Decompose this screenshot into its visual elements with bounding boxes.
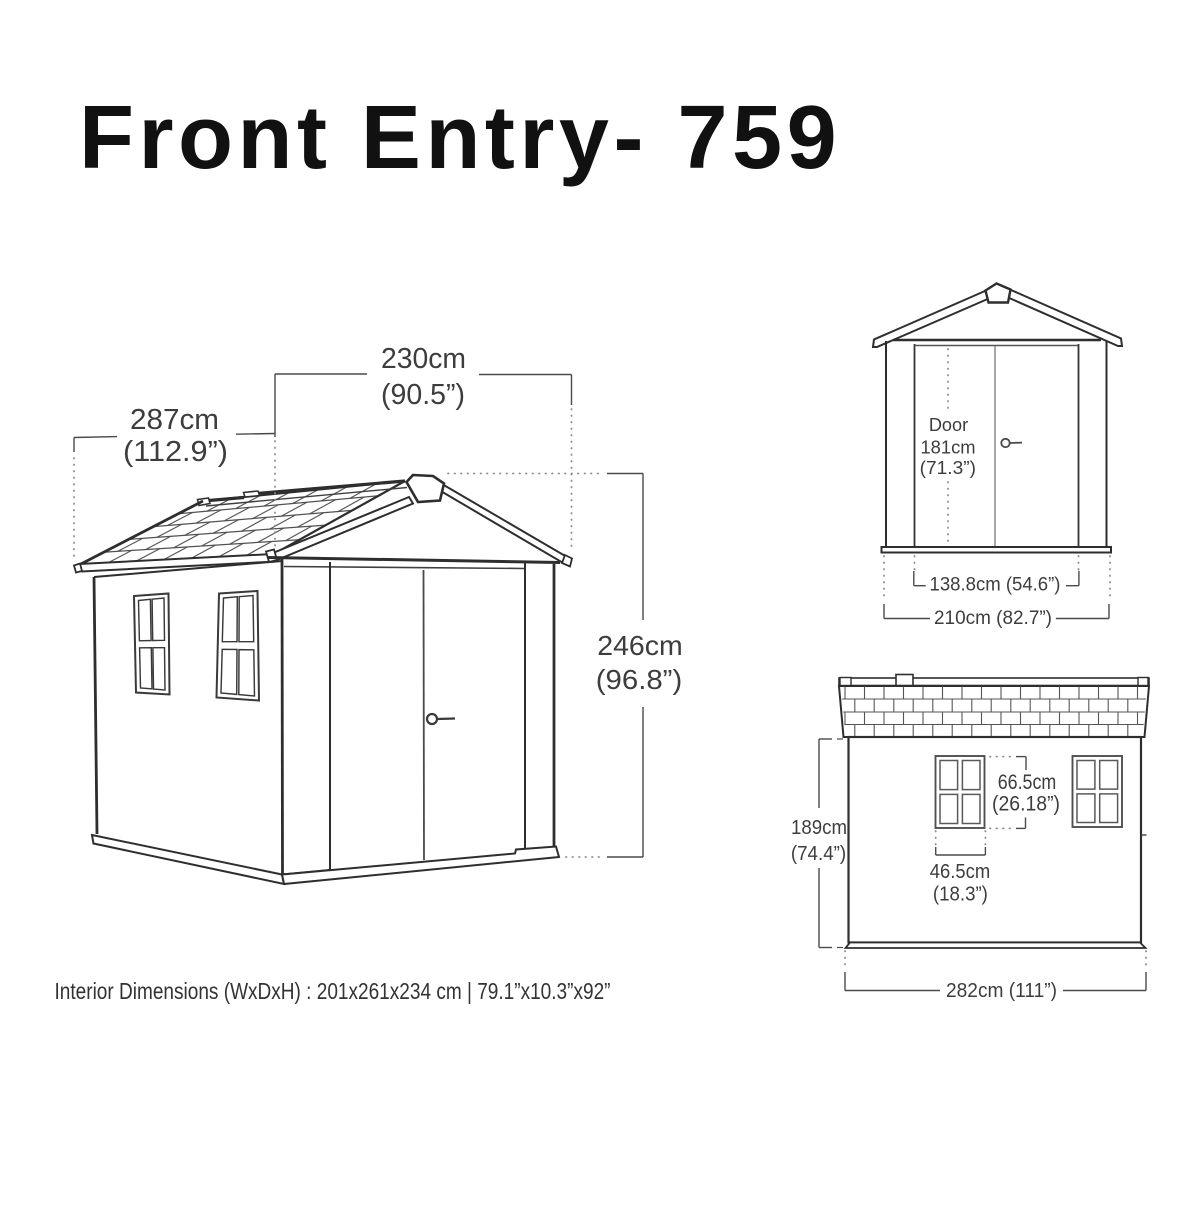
- svg-text:(112.9”): (112.9”): [123, 436, 228, 468]
- svg-text:287cm: 287cm: [130, 404, 219, 436]
- svg-text:246cm: 246cm: [597, 630, 683, 661]
- svg-text:(74.4”): (74.4”): [791, 842, 846, 865]
- svg-text:(90.5”): (90.5”): [381, 379, 465, 411]
- svg-text:66.5cm: 66.5cm: [998, 771, 1057, 794]
- svg-text:(26.18”): (26.18”): [992, 792, 1060, 815]
- svg-text:210cm (82.7”): 210cm (82.7”): [934, 607, 1052, 629]
- svg-text:Interior Dimensions (WxDxH) :: Interior Dimensions (WxDxH) : 201x261x23…: [55, 978, 611, 1004]
- svg-text:(71.3”): (71.3”): [920, 457, 976, 478]
- svg-text:282cm (111”): 282cm (111”): [946, 980, 1057, 1002]
- svg-text:189cm: 189cm: [791, 816, 847, 839]
- svg-text:46.5cm: 46.5cm: [930, 861, 990, 883]
- svg-text:181cm: 181cm: [920, 436, 975, 457]
- svg-text:Door: Door: [929, 414, 968, 435]
- svg-text:230cm: 230cm: [381, 343, 466, 375]
- svg-text:138.8cm (54.6”): 138.8cm (54.6”): [930, 574, 1061, 596]
- svg-text:(96.8”): (96.8”): [596, 664, 683, 695]
- svg-text:Front Entry- 759: Front Entry- 759: [79, 88, 841, 188]
- svg-text:(18.3”): (18.3”): [933, 884, 988, 906]
